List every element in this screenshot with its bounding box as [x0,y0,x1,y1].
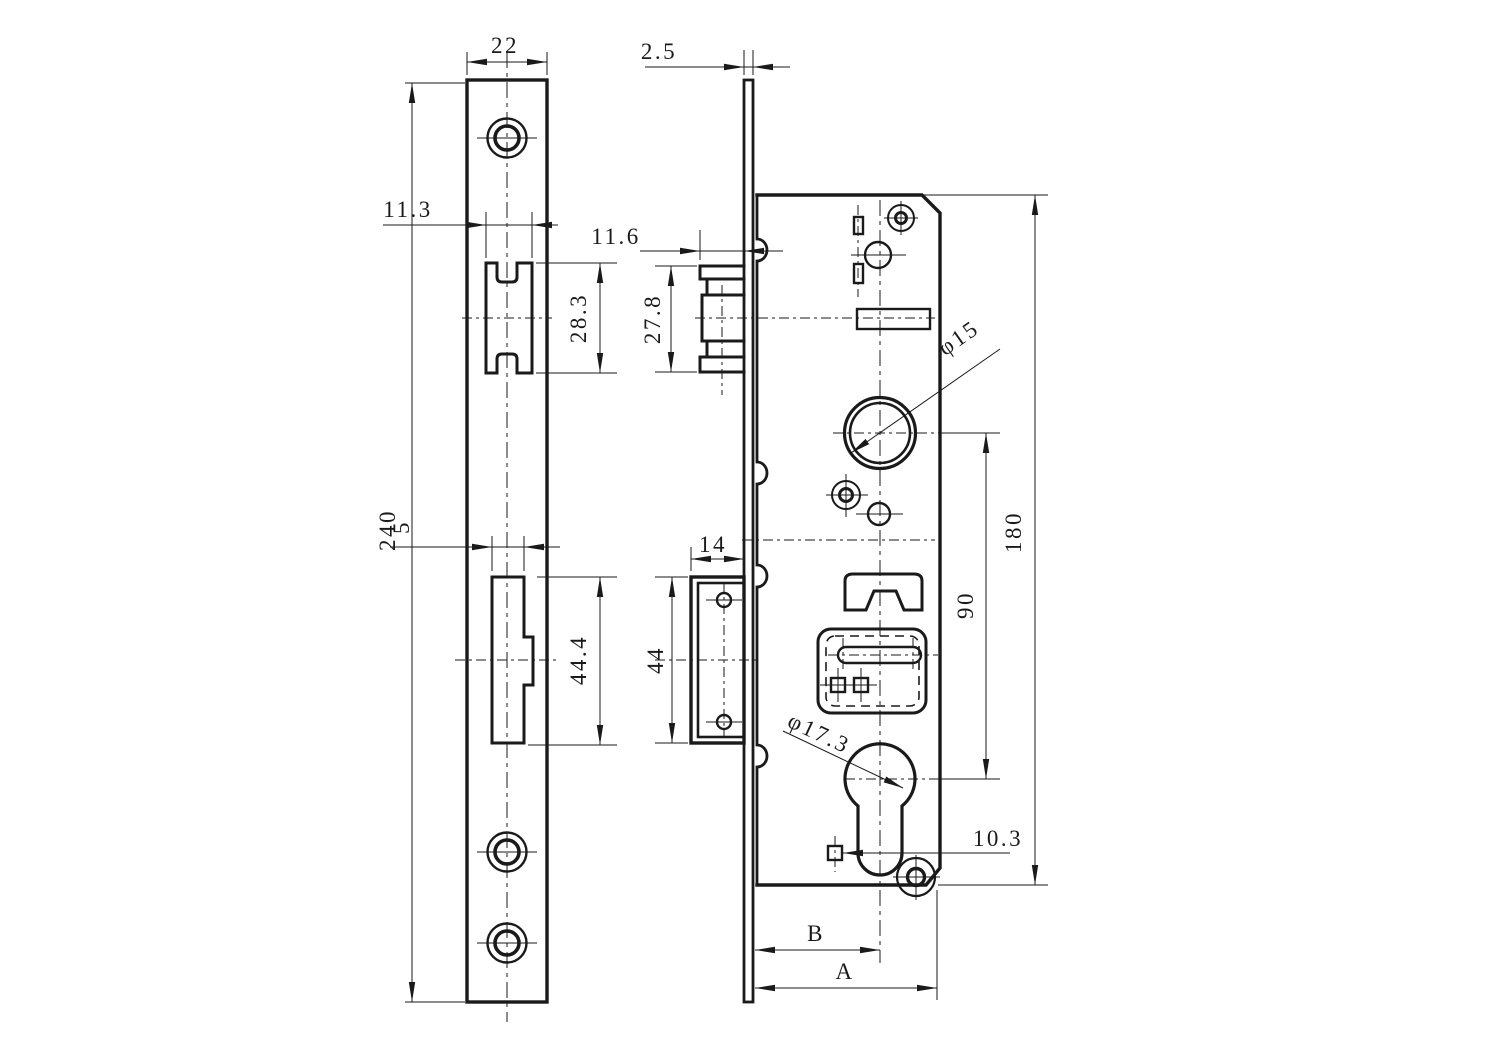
dim-latch-height: 27.8 [640,266,697,372]
dim-label-11-6: 11.6 [591,224,640,249]
dim-label-180: 180 [1001,511,1026,553]
dim-label-44-4: 44.4 [566,635,591,685]
screw-hole-bottom-1 [477,833,537,872]
dim-label-2-5: 2.5 [641,39,677,64]
latch-side-profile [700,266,744,395]
faceplate-front-view: 22 11.3 240 5 [375,33,617,1022]
screw-hole-top [477,119,537,158]
dim-label-22: 22 [491,33,519,58]
dim-label-b: B [807,921,825,946]
dim-cylinder-screw-offset: 10.3 [843,826,1023,853]
mortise-lock-drawing: 22 11.3 240 5 [0,0,1500,1060]
case-screw-top [884,201,918,235]
follower-leader-line [851,349,1000,453]
technical-drawing-page: 22 11.3 240 5 [0,0,1500,1060]
screw-hole-bottom-2 [477,924,537,963]
lock-case-view: φ15 [695,195,1048,1000]
spring-bridge [845,574,922,610]
dim-label-28-3: 28.3 [566,293,591,343]
dim-bolt-width: 14 [691,532,744,571]
dim-label-5: 5 [389,520,414,534]
dim-centers-distance: 90 [953,433,986,779]
euro-cylinder-hole: φ17.3 [783,708,1000,875]
dim-label-phi17-3: φ17.3 [784,708,854,759]
dim-label-27-8: 27.8 [640,294,665,344]
dim-label-14: 14 [699,532,727,557]
case-screw-mid [826,474,868,517]
side-view: 2.5 11.6 27.8 14 44 [591,39,790,1002]
dim-label-11-3: 11.3 [383,197,432,222]
faceplate-side-outline [744,80,753,1002]
dim-backset-b: B [755,921,880,950]
dim-label-a: A [835,959,854,984]
bolt-side-profile [655,577,757,743]
dim-label-90: 90 [953,591,978,619]
dim-plate-thickness: 2.5 [641,39,790,75]
dim-bolt-cutout-width: 5 [389,520,560,571]
gearbox [818,629,938,713]
dim-plate-width: 22 [467,33,547,75]
spindle-slot [857,309,930,329]
dim-bolt-cutout-height: 44.4 [528,577,617,745]
follower-hub: φ15 [833,315,1000,468]
bottom-square-pin [828,836,842,872]
dim-backset-a: A [755,890,937,1000]
dim-label-44: 44 [643,646,668,674]
dim-latch-cutout-width: 11.3 [383,197,558,258]
dim-label-10-3: 10.3 [973,826,1023,851]
